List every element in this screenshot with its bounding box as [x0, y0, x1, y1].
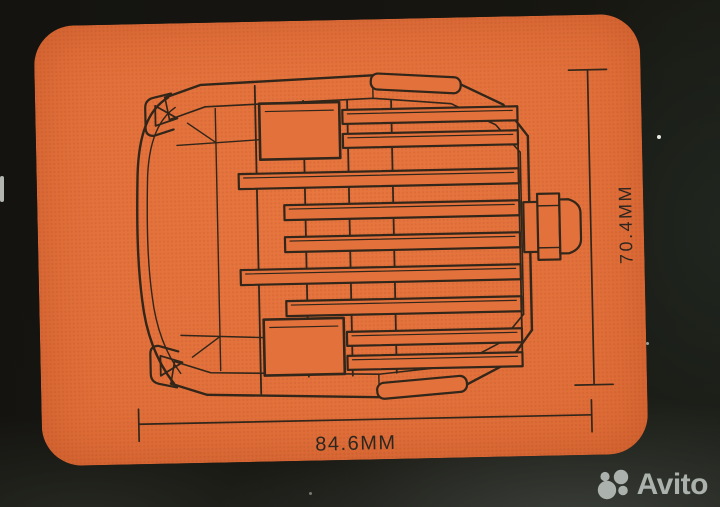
- height-dimension-label: 70.4MM: [615, 184, 637, 264]
- avito-watermark: Avito: [597, 469, 708, 500]
- product-photo: { "photo": { "background_color": "#15141…: [0, 0, 720, 507]
- led-work-light-rear-view-drawing: 84.6MM 70.4MM: [33, 14, 648, 467]
- dust-speck: [657, 135, 661, 139]
- cable-gland-connector: [523, 193, 581, 260]
- photo-edge-glint: [0, 176, 4, 202]
- avito-logo-icon: [597, 469, 632, 500]
- dust-speck: [309, 492, 312, 495]
- width-dimension-label: 84.6MM: [315, 432, 397, 456]
- dust-speck: [646, 342, 649, 345]
- avito-watermark-text: Avito: [637, 470, 708, 500]
- spec-card: 84.6MM 70.4MM: [33, 14, 648, 467]
